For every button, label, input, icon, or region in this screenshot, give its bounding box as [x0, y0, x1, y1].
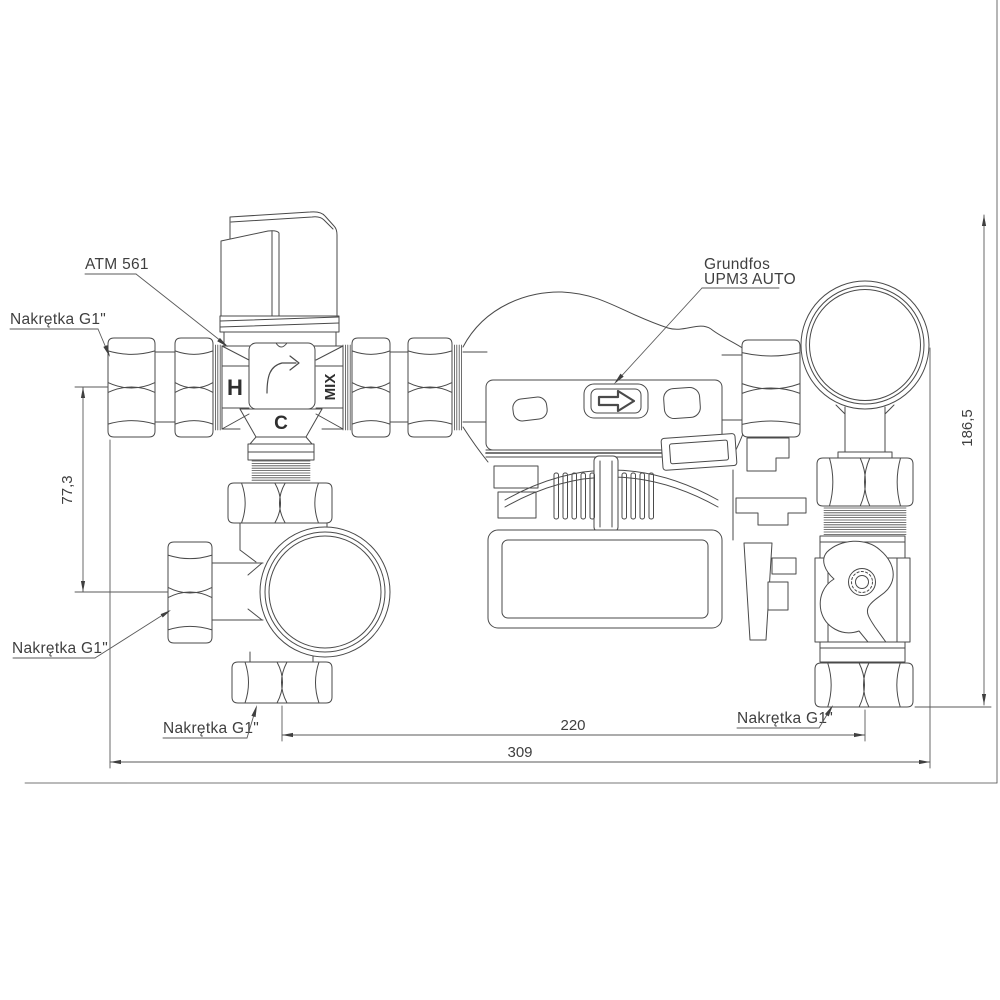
drain-tee: [168, 523, 390, 703]
label-nut-bottom-center-text: Nakrętka G1": [163, 720, 259, 737]
label-pump-model-text: UPM3 AUTO: [704, 271, 796, 288]
label-nut-mid-left-text: Nakrętka G1": [12, 640, 108, 657]
pipe-threads: [213, 345, 220, 430]
port-label-cold: C: [274, 413, 288, 434]
pipe-threads: [252, 461, 310, 480]
hex-nut: [815, 663, 913, 707]
hex-nut: [228, 483, 332, 523]
pipe-threads: [452, 345, 462, 430]
label-nut-bottom-right: Nakrętka G1": [737, 705, 833, 728]
hex-nut: [352, 338, 390, 437]
port-label-mix: MIX: [322, 374, 339, 401]
port-label-hot: H: [227, 375, 243, 400]
technical-drawing-pump-group: H MIX C: [0, 0, 1000, 1000]
hex-nut: [175, 338, 213, 437]
hex-nut: [408, 338, 452, 437]
union-valve-to-pump: [343, 338, 487, 437]
valve-front-panel: [249, 343, 315, 409]
mixing-valve-body: H MIX C: [222, 343, 343, 437]
valve-cold-outlet: [228, 437, 332, 523]
pipe-threads: [824, 508, 906, 534]
label-nut-top-left-text: Nakrętka G1": [10, 311, 106, 328]
hex-nut: [817, 458, 913, 506]
label-nut-top-left: Nakrętka G1": [10, 311, 110, 357]
label-nut-mid-left: Nakrętka G1": [12, 610, 171, 658]
label-nut-bottom-right-text: Nakrętka G1": [737, 710, 833, 727]
pump-terminal-bracket: [733, 438, 806, 640]
dimension-value-220: 220: [560, 717, 585, 734]
dimension-186-5: 186,5: [915, 215, 991, 707]
pipe-threads: [343, 345, 350, 430]
dimension-value-186-5: 186,5: [959, 409, 976, 447]
dimension-value-77-3: 77,3: [59, 475, 76, 504]
hex-nut: [108, 338, 155, 437]
elbow-union: [742, 281, 929, 460]
hex-nut: [232, 662, 332, 703]
tee-end-view: [260, 527, 390, 657]
label-nut-bottom-center: Nakrętka G1": [163, 705, 259, 738]
drawing-canvas: H MIX C: [0, 0, 1000, 1000]
valve-knob: [220, 212, 339, 346]
hex-nut: [168, 542, 212, 643]
dimension-value-309: 309: [507, 744, 532, 761]
hex-nut: [742, 340, 800, 437]
inlet-union-left: [108, 338, 220, 437]
label-valve-model: ATM 561: [85, 256, 228, 347]
ball-valve-assembly: [815, 458, 913, 707]
label-valve-model-text: ATM 561: [85, 256, 149, 273]
pump-display: [661, 433, 737, 470]
